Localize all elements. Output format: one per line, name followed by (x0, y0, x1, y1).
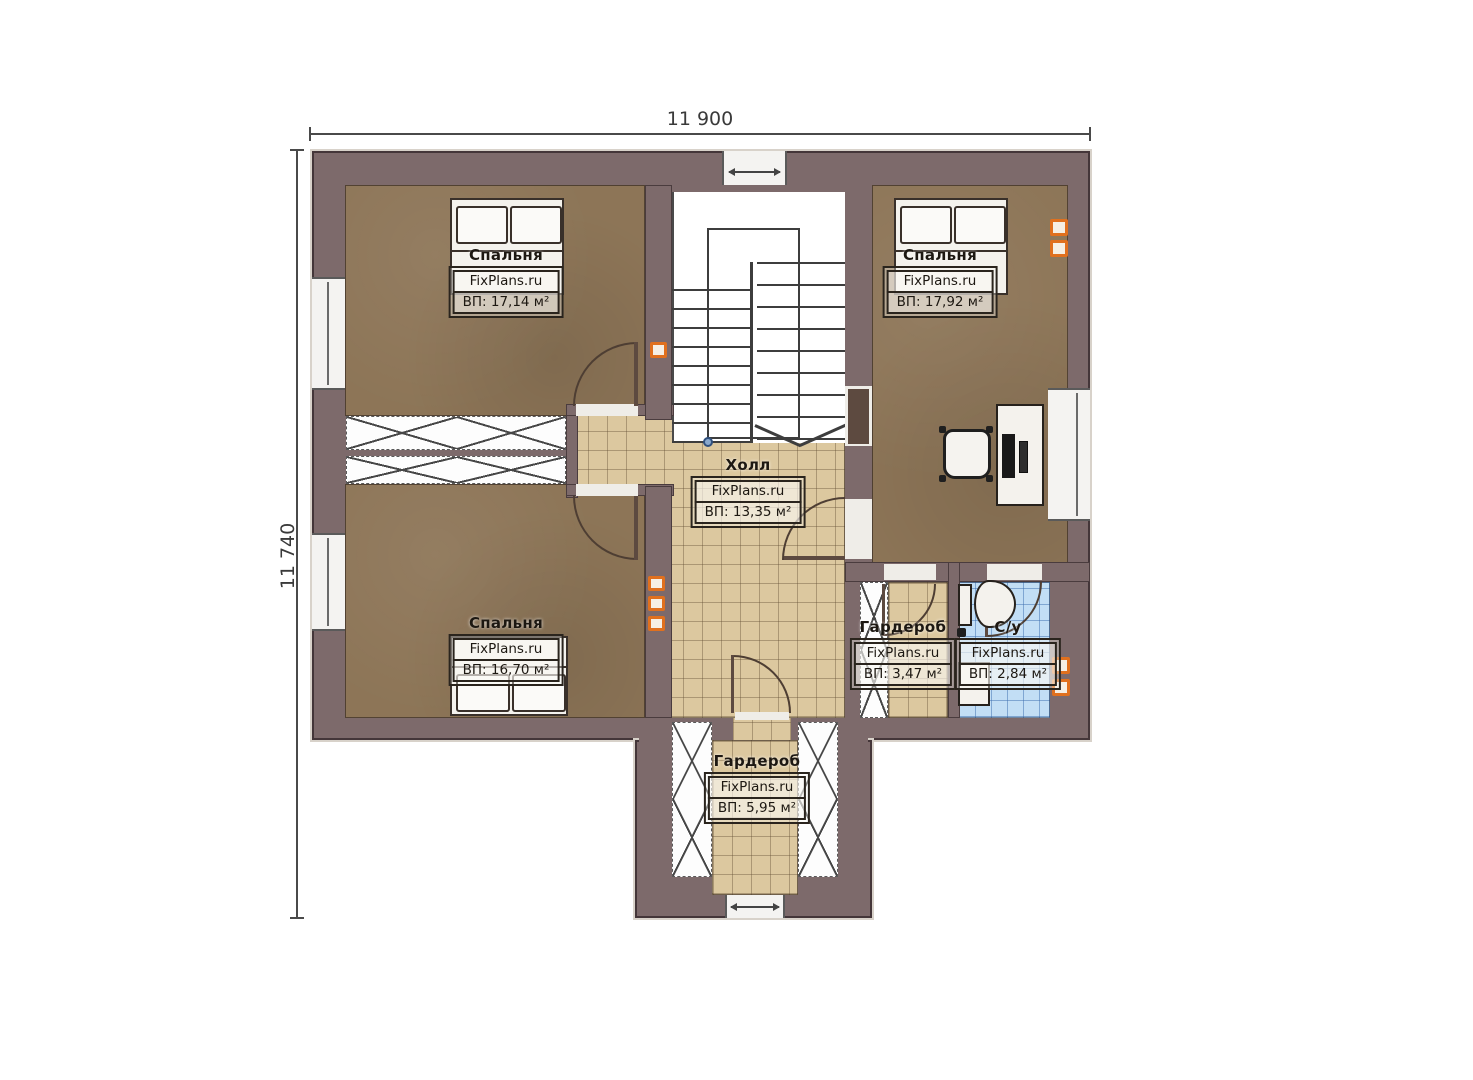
room-info-box: FixPlans.ru ВП: 17,14 м² (449, 266, 564, 318)
x-hatch (457, 417, 565, 449)
glass-line (1076, 393, 1078, 516)
room-name: Гардероб (860, 618, 947, 636)
room-label-wardrobe-bottom: Гардероб FixPlans.ru ВП: 5,95 м² (704, 752, 810, 824)
room-area: ВП: 5,95 м² (708, 797, 806, 820)
room-name: Холл (725, 456, 770, 474)
room-area: ВП: 17,14 м² (453, 291, 560, 314)
dimension-tick (1089, 127, 1091, 141)
door-threshold (845, 499, 872, 559)
room-area: ВП: 16,70 м² (453, 659, 560, 682)
glass-line (327, 538, 329, 626)
pillow (900, 206, 952, 244)
door-threshold (987, 564, 1042, 580)
room-label-wardrobe-right: Гардероб FixPlans.ru ВП: 3,47 м² (850, 618, 956, 690)
dimension-tick (290, 149, 304, 151)
door-leaf-bedroomBL (634, 496, 638, 560)
window-left-upper (312, 277, 345, 390)
watermark: FixPlans.ru (708, 776, 806, 799)
watermark: FixPlans.ru (453, 270, 560, 293)
door-leaf-wardrobe-bottom (731, 655, 734, 713)
room-info-box: FixPlans.ru ВП: 13,35 м² (691, 476, 806, 528)
x-hatch (347, 457, 457, 483)
room-area: ВП: 3,47 м² (854, 663, 952, 686)
room-name: Спальня (469, 246, 543, 264)
floor-plan-canvas: Спальня FixPlans.ru ВП: 17,14 м² Спальня… (0, 0, 1473, 1080)
watermark: FixPlans.ru (453, 638, 560, 661)
room-label-bedroom-top-left: Спальня FixPlans.ru ВП: 17,14 м² (449, 246, 564, 318)
dimension-tick (290, 917, 304, 919)
watermark: FixPlans.ru (854, 642, 952, 665)
room-area: ВП: 13,35 м² (695, 501, 802, 524)
room-info-box: FixPlans.ru ВП: 17,92 м² (883, 266, 998, 318)
door-threshold (735, 712, 789, 720)
watermark: FixPlans.ru (887, 270, 994, 293)
window-top (722, 151, 787, 185)
closet-strip-bottom (346, 456, 566, 484)
room-area: ВП: 17,92 м² (887, 291, 994, 314)
chair-arm (939, 475, 946, 482)
room-name: Гардероб (714, 752, 801, 770)
room-info-box: FixPlans.ru ВП: 2,84 м² (955, 638, 1061, 690)
computer-monitor (1002, 434, 1015, 478)
pillow (954, 206, 1006, 244)
room-name: Спальня (903, 246, 977, 264)
room-label-bedroom-bottom-left: Спальня FixPlans.ru ВП: 16,70 м² (449, 614, 564, 686)
vent-marker (648, 596, 665, 611)
room-name: Спальня (469, 614, 543, 632)
dimension-top-label: 11 900 (650, 108, 750, 130)
door-leaf-hall-study (784, 556, 845, 560)
wall-bedroomTL-hall (645, 185, 672, 420)
room-info-box: FixPlans.ru ВП: 16,70 м² (449, 634, 564, 686)
room-label-hall: Холл FixPlans.ru ВП: 13,35 м² (691, 456, 806, 528)
room-label-bathroom: С/у FixPlans.ru ВП: 2,84 м² (955, 618, 1061, 690)
vent-marker (1050, 240, 1068, 257)
dimension-left-label: 11 740 (277, 506, 299, 606)
watermark: FixPlans.ru (695, 480, 802, 503)
x-hatch (457, 457, 565, 483)
room-name: С/у (994, 618, 1021, 636)
room-info-box: FixPlans.ru ВП: 5,95 м² (704, 772, 810, 824)
door-threshold (884, 564, 936, 580)
office-chair (943, 429, 991, 479)
vent-marker (648, 616, 665, 631)
vent-marker (1050, 219, 1068, 236)
room-area: ВП: 2,84 м² (959, 663, 1057, 686)
vent-marker (650, 342, 667, 358)
window-right (1048, 388, 1090, 521)
window-left-lower (312, 533, 345, 631)
computer-tower (1019, 441, 1028, 473)
door-leaf-bedroomTL (634, 342, 638, 406)
door-leaf-study (848, 389, 869, 444)
level-marker-dot (703, 437, 713, 447)
pillow (456, 206, 508, 244)
dimension-line-top (310, 133, 1090, 135)
dimension-tick (309, 127, 311, 141)
chair-arm (986, 475, 993, 482)
vent-marker (648, 576, 665, 591)
window-dimension (731, 906, 779, 908)
watermark: FixPlans.ru (959, 642, 1057, 665)
pillow (510, 206, 562, 244)
hall-extension-passage (733, 718, 791, 742)
window-dimension (729, 171, 780, 173)
door-threshold (576, 484, 638, 496)
closet-strip-top (346, 416, 566, 450)
window-bottom (725, 895, 785, 918)
room-label-bedroom-top-right: Спальня FixPlans.ru ВП: 17,92 м² (883, 246, 998, 318)
x-hatch (347, 417, 457, 449)
stairwell-opening-outline (707, 228, 800, 439)
room-info-box: FixPlans.ru ВП: 3,47 м² (850, 638, 956, 690)
wall-study-bathroom (845, 562, 1090, 582)
glass-line (327, 282, 329, 385)
